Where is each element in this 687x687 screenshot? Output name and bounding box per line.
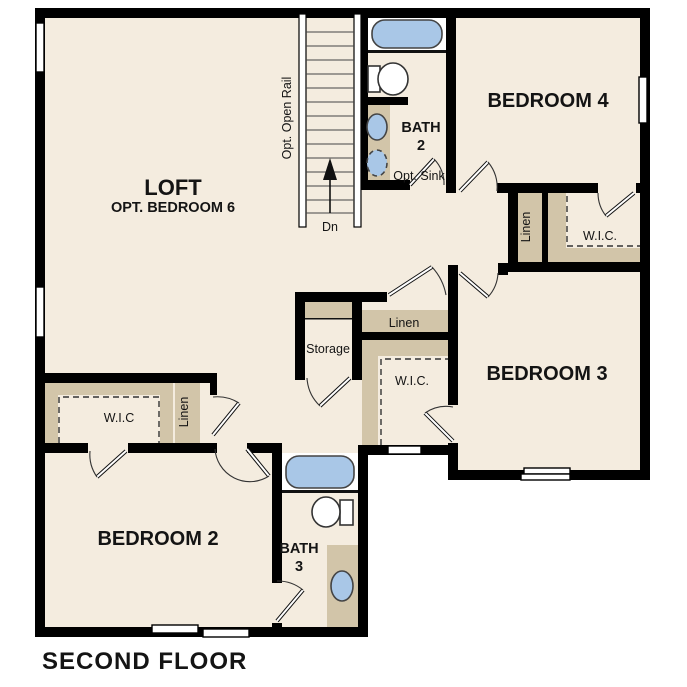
bath3-label: BATH [279, 541, 318, 557]
sink-bath3 [331, 571, 353, 601]
wic-bedroom2-label: W.I.C [104, 411, 135, 425]
storage-shelf [305, 302, 352, 318]
window-bedroom4 [639, 77, 647, 123]
floor-plan: LOFT OPT. BEDROOM 6 BEDROOM 4 BEDROOM 3 … [0, 0, 687, 687]
window-left-upper [36, 23, 44, 72]
wall-linen4-wic4 [542, 193, 548, 262]
wall-storage-top [295, 292, 362, 302]
window-left-mid [36, 287, 44, 337]
open-rail-label: Opt. Open Rail [280, 77, 294, 160]
wall-bottom-wing [35, 627, 368, 637]
toilet-tank-bath3 [340, 500, 353, 525]
window-bedroom3-a [524, 468, 570, 474]
linen-bedroom2-label: Linen [177, 397, 191, 428]
bedroom4-label: BEDROOM 4 [487, 90, 609, 112]
wall-hall-seg [358, 292, 387, 302]
wall-bath2-bed4 [446, 8, 456, 193]
window-bedroom2-b [203, 629, 249, 637]
wic-bedroom3-shelf-left [362, 340, 378, 445]
stairs-rail-right [354, 14, 361, 227]
wic-bedroom2-shelf-right [160, 383, 173, 443]
opt-sink-bath2 [367, 150, 387, 176]
bathtub-icon-bath2 [372, 20, 442, 48]
wall-north-bed3-east [508, 262, 650, 272]
wall-bath2-stub [364, 97, 408, 105]
sink-bath2 [367, 114, 387, 140]
wall-bed2-bath3 [272, 443, 282, 583]
stairs-down-label: Dn [322, 220, 338, 234]
storage-shelf-edge [305, 318, 352, 320]
wic-bedroom4-label: W.I.C. [583, 229, 617, 243]
wall-bath2-tub-line [368, 50, 446, 53]
wall-bed2-north-b [128, 443, 217, 453]
bathtub-icon-bath3 [286, 456, 354, 488]
wic-bedroom2-shelf-top [45, 383, 173, 395]
wall-storage-left [295, 292, 305, 380]
stairs-rail-left [299, 14, 306, 227]
wall-bed3-left-stub [448, 443, 458, 455]
wic-bedroom2-shelf-left [45, 383, 58, 443]
wic-bedroom4-shelf-bottom [548, 248, 640, 262]
bath2-label: BATH [401, 120, 440, 136]
page-title: SECOND FLOOR [42, 648, 247, 675]
wall-north-bed3-stub [498, 263, 508, 275]
toilet-bowl-bath3 [312, 497, 340, 527]
opt-sink-label: Opt. Sink [393, 169, 445, 183]
window-bedroom3-b [521, 474, 570, 480]
linen-bedroom4-label: Linen [519, 212, 533, 243]
wall-linen3-south [358, 332, 458, 340]
loft-label: LOFT [144, 175, 202, 200]
wic-bedroom3-label: W.I.C. [395, 374, 429, 388]
floor-plan-page: LOFT OPT. BEDROOM 6 BEDROOM 4 BEDROOM 3 … [0, 0, 687, 687]
wall-bath3-tub-line [282, 490, 358, 493]
bath3-number: 3 [295, 559, 303, 575]
loft-subtitle: OPT. BEDROOM 6 [111, 200, 235, 216]
wall-bath3-right [358, 450, 368, 637]
window-bedroom2-a [152, 625, 198, 633]
wall-linen2-right-stub [210, 373, 217, 395]
wall-bed2-bath3-stub [272, 623, 282, 637]
wall-bed2-north-a [35, 443, 88, 453]
toilet-bowl-bath2 [378, 63, 408, 95]
linen-hall-label: Linen [389, 316, 420, 330]
bath2-number: 2 [417, 138, 425, 154]
wall-linen4-left [508, 183, 518, 272]
window-wic3 [388, 446, 421, 454]
wall-bed4-south-right [636, 183, 650, 193]
bedroom2-label: BEDROOM 2 [97, 528, 218, 550]
bedroom3-label: BEDROOM 3 [486, 363, 607, 385]
storage-label: Storage [306, 342, 350, 356]
wall-top [35, 8, 650, 18]
wall-wic2-top [35, 373, 217, 383]
